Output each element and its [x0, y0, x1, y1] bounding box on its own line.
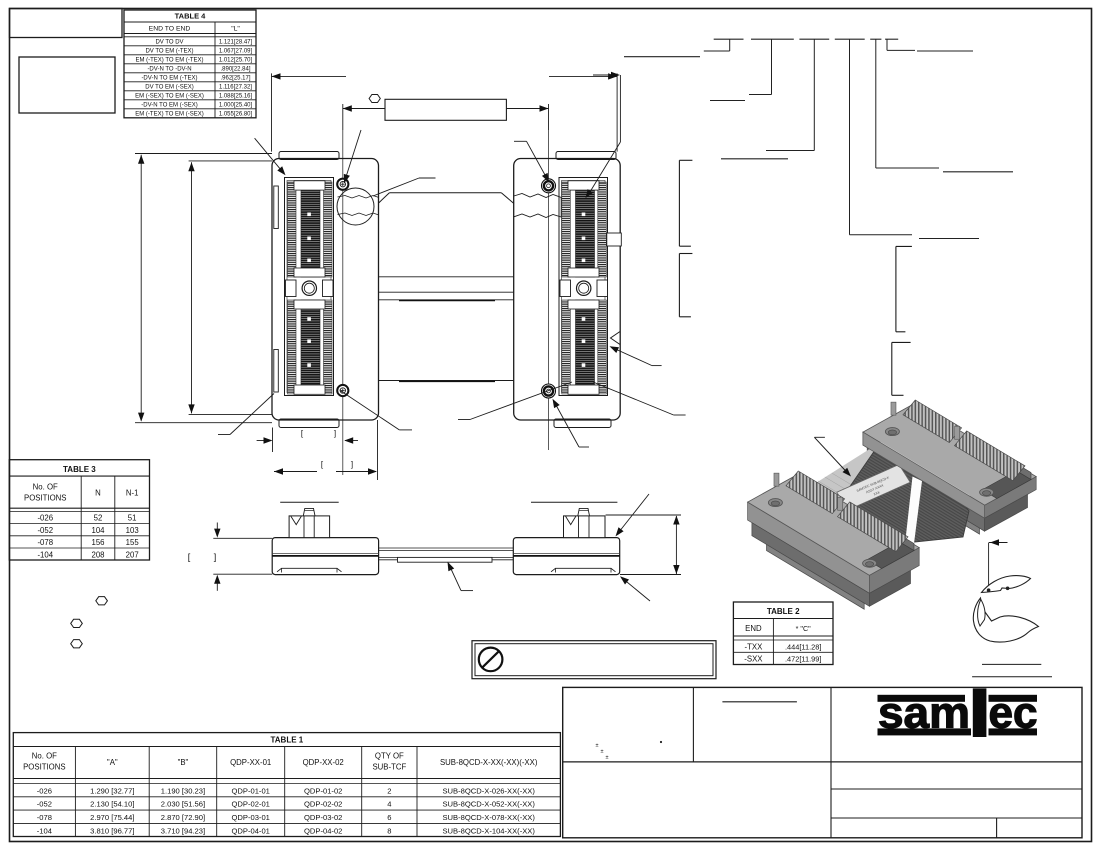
- svg-text:N: N: [95, 489, 101, 498]
- svg-text:.890[22.84]: .890[22.84]: [220, 67, 250, 73]
- svg-text:DV TO DV: DV TO DV: [155, 40, 183, 46]
- svg-text:1.055[26.80]: 1.055[26.80]: [219, 112, 253, 118]
- svg-text:6: 6: [387, 813, 391, 822]
- svg-text:QDP-02-01: QDP-02-01: [231, 800, 269, 809]
- svg-text:2.030 [51.56]: 2.030 [51.56]: [161, 800, 205, 809]
- svg-text:QDP-01-02: QDP-01-02: [304, 786, 342, 795]
- svg-text:-DV-N TO EM (-TEX): -DV-N TO EM (-TEX): [141, 76, 197, 82]
- svg-text:-052: -052: [37, 526, 53, 535]
- svg-text:3.710 [94.23]: 3.710 [94.23]: [161, 826, 205, 835]
- svg-text:QDP-03-01: QDP-03-01: [231, 813, 269, 822]
- svg-text:52: 52: [94, 514, 103, 523]
- svg-text:2.970 [75.44]: 2.970 [75.44]: [90, 813, 134, 822]
- svg-text:1.190 [30.23]: 1.190 [30.23]: [161, 786, 205, 795]
- svg-text:-DV-N TO -DV-N: -DV-N TO -DV-N: [147, 67, 191, 73]
- svg-text:1.116[27.32]: 1.116[27.32]: [219, 85, 252, 91]
- svg-text:±: ±: [605, 755, 608, 761]
- svg-text:1.000[25.40]: 1.000[25.40]: [219, 103, 253, 109]
- svg-text:1.121[28.47]: 1.121[28.47]: [219, 40, 253, 46]
- svg-text:4: 4: [387, 800, 391, 809]
- svg-text:TABLE 3: TABLE 3: [63, 465, 96, 474]
- svg-text:1.012[25.70]: 1.012[25.70]: [219, 58, 253, 64]
- svg-text:2: 2: [387, 786, 391, 795]
- svg-text:QTY OF: QTY OF: [375, 752, 404, 761]
- svg-text:±: ±: [595, 743, 598, 749]
- svg-text:-078: -078: [37, 538, 53, 547]
- svg-text:* "C": * "C": [796, 624, 812, 633]
- svg-text:SUB-8QCD-X-XX(-XX)(-XX): SUB-8QCD-X-XX(-XX)(-XX): [440, 758, 538, 767]
- svg-text:-DV-N TO EM (-SEX): -DV-N TO EM (-SEX): [141, 103, 197, 109]
- svg-text:SUB-8QCD-X-052-XX(-XX): SUB-8QCD-X-052-XX(-XX): [442, 800, 535, 809]
- svg-text:END TO END: END TO END: [149, 25, 191, 32]
- svg-text:DV TO EM (-TEX): DV TO EM (-TEX): [145, 49, 193, 55]
- svg-text:-052: -052: [37, 800, 52, 809]
- svg-text:"B": "B": [178, 758, 189, 767]
- svg-text:]: ]: [351, 460, 353, 469]
- svg-text:]: ]: [214, 552, 217, 562]
- svg-text:2.870 [72.90]: 2.870 [72.90]: [161, 813, 205, 822]
- svg-text:EM (-SEX) TO EM (-SEX): EM (-SEX) TO EM (-SEX): [135, 94, 204, 100]
- svg-text:SUB-8QCD-X-078-XX(-XX): SUB-8QCD-X-078-XX(-XX): [442, 813, 535, 822]
- svg-text:N-1: N-1: [126, 489, 139, 498]
- svg-text:-TXX: -TXX: [745, 643, 764, 652]
- svg-text:"L": "L": [231, 25, 240, 32]
- svg-text:TABLE 2: TABLE 2: [767, 607, 800, 616]
- svg-text:104: 104: [91, 526, 105, 535]
- svg-text:8: 8: [387, 826, 391, 835]
- svg-text:QDP-02-02: QDP-02-02: [304, 800, 342, 809]
- svg-text:-078: -078: [37, 813, 52, 822]
- svg-text:sam: sam: [878, 689, 970, 738]
- svg-text:DV TO EM (-SEX): DV TO EM (-SEX): [145, 85, 193, 91]
- svg-text:-104: -104: [37, 550, 53, 559]
- svg-text:SUB-TCF: SUB-TCF: [372, 763, 406, 772]
- svg-text:QDP-04-02: QDP-04-02: [304, 826, 342, 835]
- svg-text:QDP-XX-01: QDP-XX-01: [230, 758, 271, 767]
- svg-text:156: 156: [91, 538, 104, 547]
- svg-text:QDP-04-01: QDP-04-01: [231, 826, 269, 835]
- svg-text:207: 207: [126, 550, 139, 559]
- svg-text:POSITIONS: POSITIONS: [24, 494, 66, 503]
- svg-text:POSITIONS: POSITIONS: [23, 763, 65, 772]
- svg-text:EM (-TEX) TO EM (-SEX): EM (-TEX) TO EM (-SEX): [135, 112, 203, 118]
- svg-text:208: 208: [91, 550, 104, 559]
- svg-text:51: 51: [128, 514, 137, 523]
- svg-text:No. OF: No. OF: [32, 752, 57, 761]
- svg-text:.962[25.17]: .962[25.17]: [220, 76, 250, 82]
- svg-text:"A": "A": [107, 758, 118, 767]
- svg-text:-026: -026: [37, 786, 52, 795]
- svg-text:QDP-XX-02: QDP-XX-02: [303, 758, 344, 767]
- svg-text:No. OF: No. OF: [33, 483, 58, 492]
- svg-text:-026: -026: [37, 514, 53, 523]
- svg-text:TABLE 4: TABLE 4: [175, 12, 207, 21]
- svg-text:QDP-01-01: QDP-01-01: [231, 786, 269, 795]
- svg-text:.472[11.99]: .472[11.99]: [785, 655, 821, 664]
- svg-text:SUB-8QCD-X-026-XX(-XX): SUB-8QCD-X-026-XX(-XX): [442, 786, 535, 795]
- svg-text:1.088[25.16]: 1.088[25.16]: [219, 94, 253, 100]
- svg-text:ec: ec: [989, 689, 1038, 738]
- svg-text:1.290 [32.77]: 1.290 [32.77]: [90, 786, 134, 795]
- svg-text:TABLE 1: TABLE 1: [270, 736, 303, 745]
- svg-text:2.130 [54.10]: 2.130 [54.10]: [90, 800, 134, 809]
- svg-text:1.067[27.09]: 1.067[27.09]: [219, 49, 253, 55]
- svg-text:.444[11.28]: .444[11.28]: [785, 643, 821, 652]
- svg-text:EM (-TEX) TO EM (-TEX): EM (-TEX) TO EM (-TEX): [135, 58, 203, 64]
- svg-text:SUB-8QCD-X-104-XX(-XX): SUB-8QCD-X-104-XX(-XX): [442, 826, 535, 835]
- svg-text:3.810 [96.77]: 3.810 [96.77]: [90, 826, 134, 835]
- svg-text:-104: -104: [37, 826, 52, 835]
- svg-text:155: 155: [126, 538, 140, 547]
- svg-text:END: END: [745, 624, 762, 633]
- svg-text:-SXX: -SXX: [744, 655, 763, 664]
- svg-text:103: 103: [126, 526, 139, 535]
- svg-text:±: ±: [600, 749, 603, 755]
- svg-text:QDP-03-02: QDP-03-02: [304, 813, 342, 822]
- svg-text:]: ]: [334, 429, 336, 438]
